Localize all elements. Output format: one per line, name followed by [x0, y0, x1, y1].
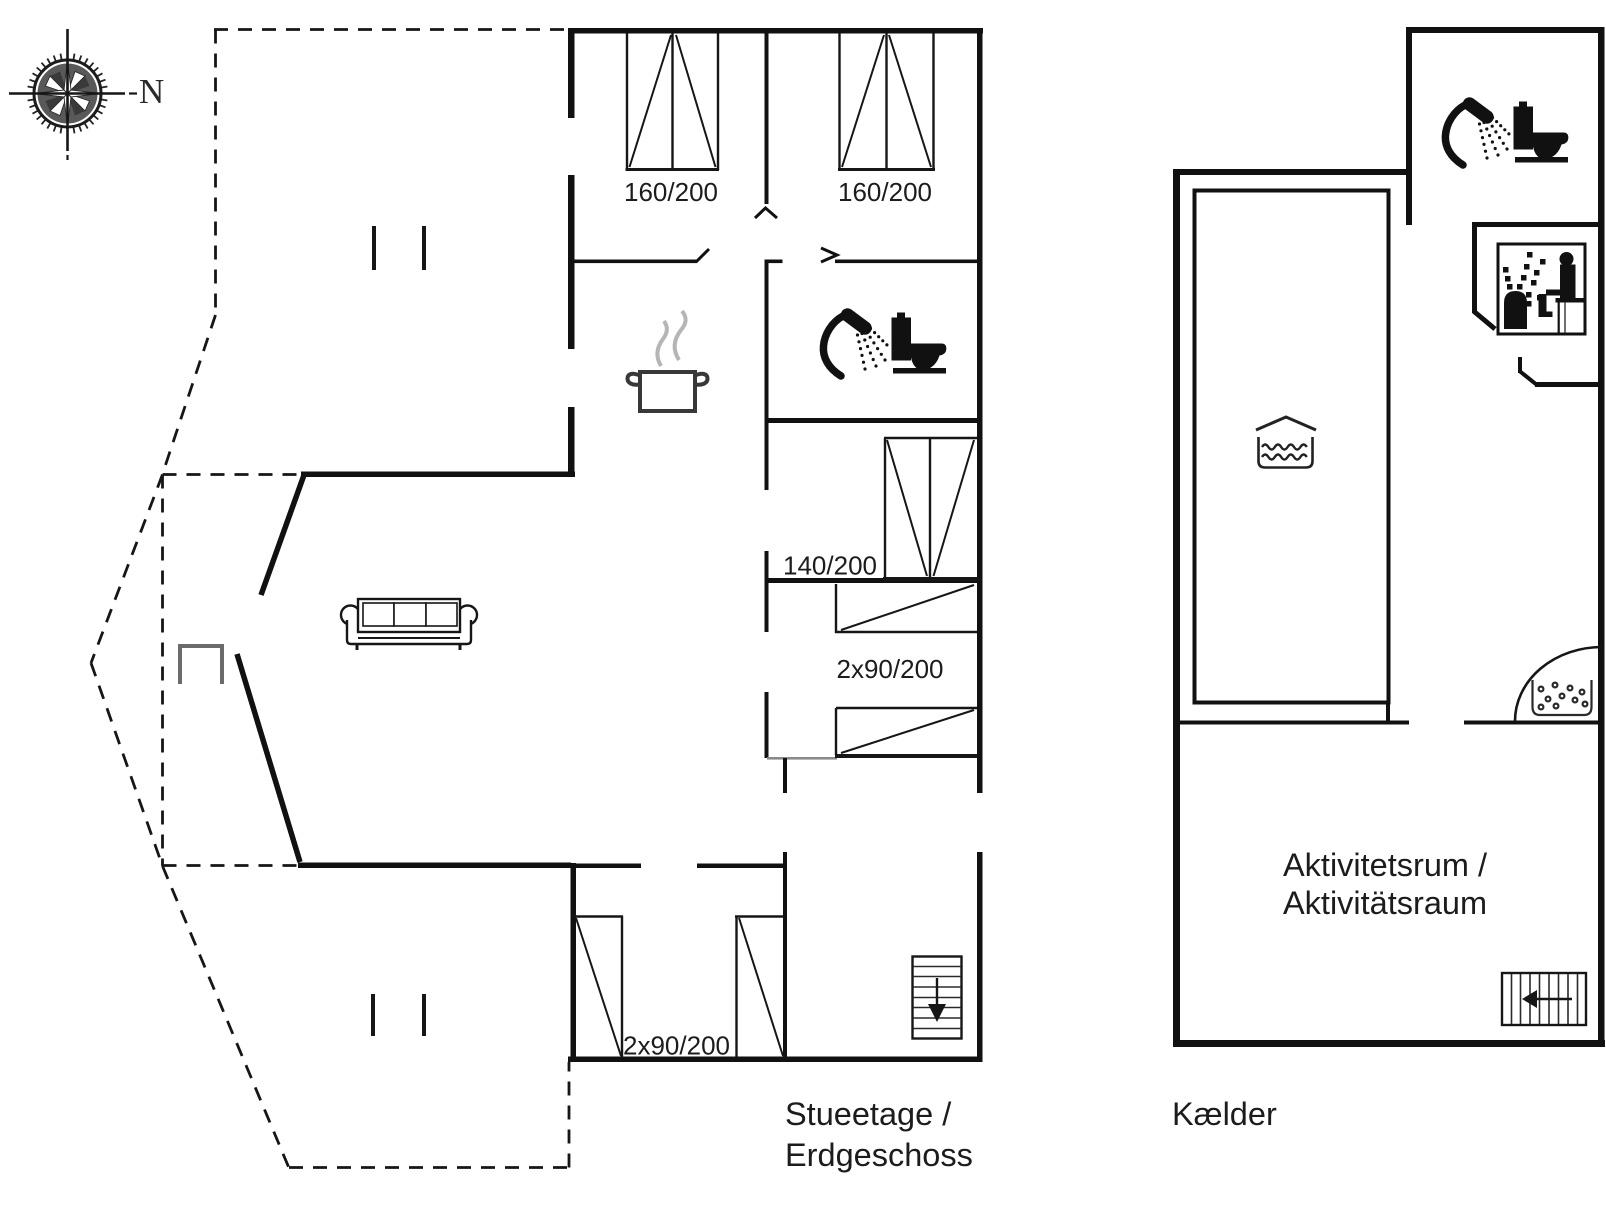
svg-text:Aktivitetsrum /: Aktivitetsrum /: [1283, 847, 1488, 883]
svg-text:Aktivitätsraum: Aktivitätsraum: [1283, 885, 1487, 921]
svg-text:N: N: [139, 72, 164, 111]
svg-text:160/200: 160/200: [838, 177, 932, 207]
svg-text:140/200: 140/200: [783, 551, 877, 581]
svg-text:2x90/200: 2x90/200: [623, 1031, 730, 1061]
svg-text:Kælder: Kælder: [1172, 1096, 1277, 1132]
svg-text:2x90/200: 2x90/200: [837, 654, 944, 684]
svg-text:160/200: 160/200: [624, 177, 718, 207]
svg-text:Erdgeschoss: Erdgeschoss: [785, 1137, 973, 1173]
svg-text:Stueetage /: Stueetage /: [785, 1096, 952, 1132]
